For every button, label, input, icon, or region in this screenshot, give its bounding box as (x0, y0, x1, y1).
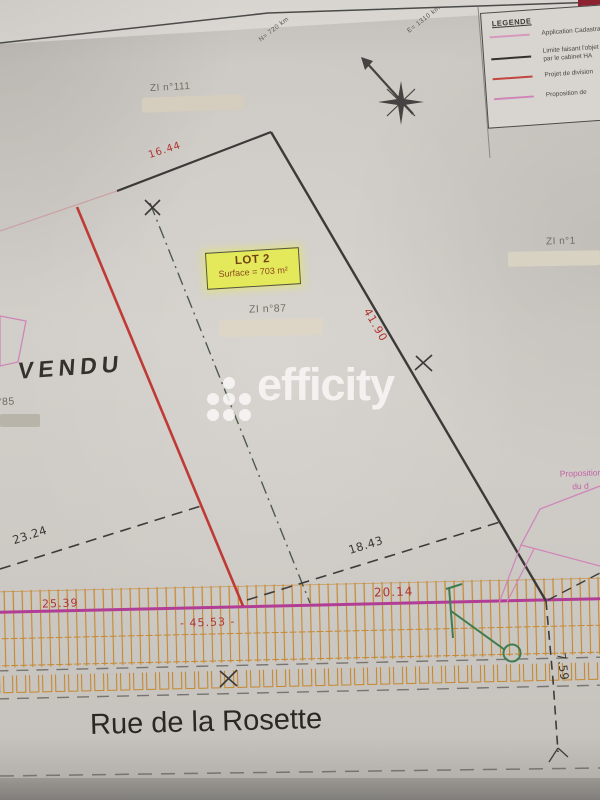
parcel-label-zi87: ZI n°87 (249, 302, 287, 315)
parcel-label-zi1: ZI n°1 (546, 235, 576, 247)
measure-road-left: 25.39 (42, 596, 79, 610)
road-south-edge-dashed (0, 768, 600, 776)
efficity-dots-icon (207, 377, 251, 421)
legend-title: LEGENDE (491, 16, 531, 28)
legend-label: Proposition de (546, 89, 587, 100)
cadastral-limit-faint (0, 191, 117, 231)
cadastral-plan-photo: N= 720 km E= 1310 km ZI n°111 ZI n°87 ZI… (0, 0, 600, 800)
legend-swatch-pink (490, 34, 530, 38)
legend-box: LEGENDE Application Cadastrale Limite fa… (480, 2, 600, 128)
measure-road-right: 20.14 (374, 584, 414, 599)
street-name: Rue de la Rosette (90, 703, 323, 742)
parcel-label-n85: n°85 (0, 396, 15, 409)
proposition-note-line2: du d (572, 479, 600, 493)
redaction-bar (0, 414, 40, 427)
legend-swatch-black (491, 55, 531, 60)
depth-line-end-tick (549, 748, 568, 762)
parcel-label-zi111: ZI n°111 (150, 81, 191, 94)
proposition-note: Proposition du d (560, 466, 600, 494)
legend-swatch-red (493, 75, 533, 80)
legend-item: Application Cadastrale (489, 25, 600, 41)
legend-item: Proposition de (494, 89, 587, 103)
proposition-note-line1: Proposition (560, 466, 600, 481)
boundary-top (117, 132, 271, 191)
legend-swatch-pink2 (494, 96, 534, 100)
legend-label: Application Cadastrale (541, 25, 600, 37)
legend-item: Limite faisant l'objet par le cabinet HA (491, 44, 600, 67)
watermark-brand: efficity (257, 359, 394, 411)
north-compass-icon (361, 57, 424, 125)
legend-item: Projet de division (492, 68, 593, 83)
redaction-bar (508, 250, 600, 267)
lot2-highlight-box: LOT 2 Surface = 703 m² (205, 247, 301, 290)
legend-label: Projet de division (544, 68, 593, 79)
redaction-bar (219, 318, 323, 338)
measure-road-center: - 45.53 - (180, 615, 236, 630)
